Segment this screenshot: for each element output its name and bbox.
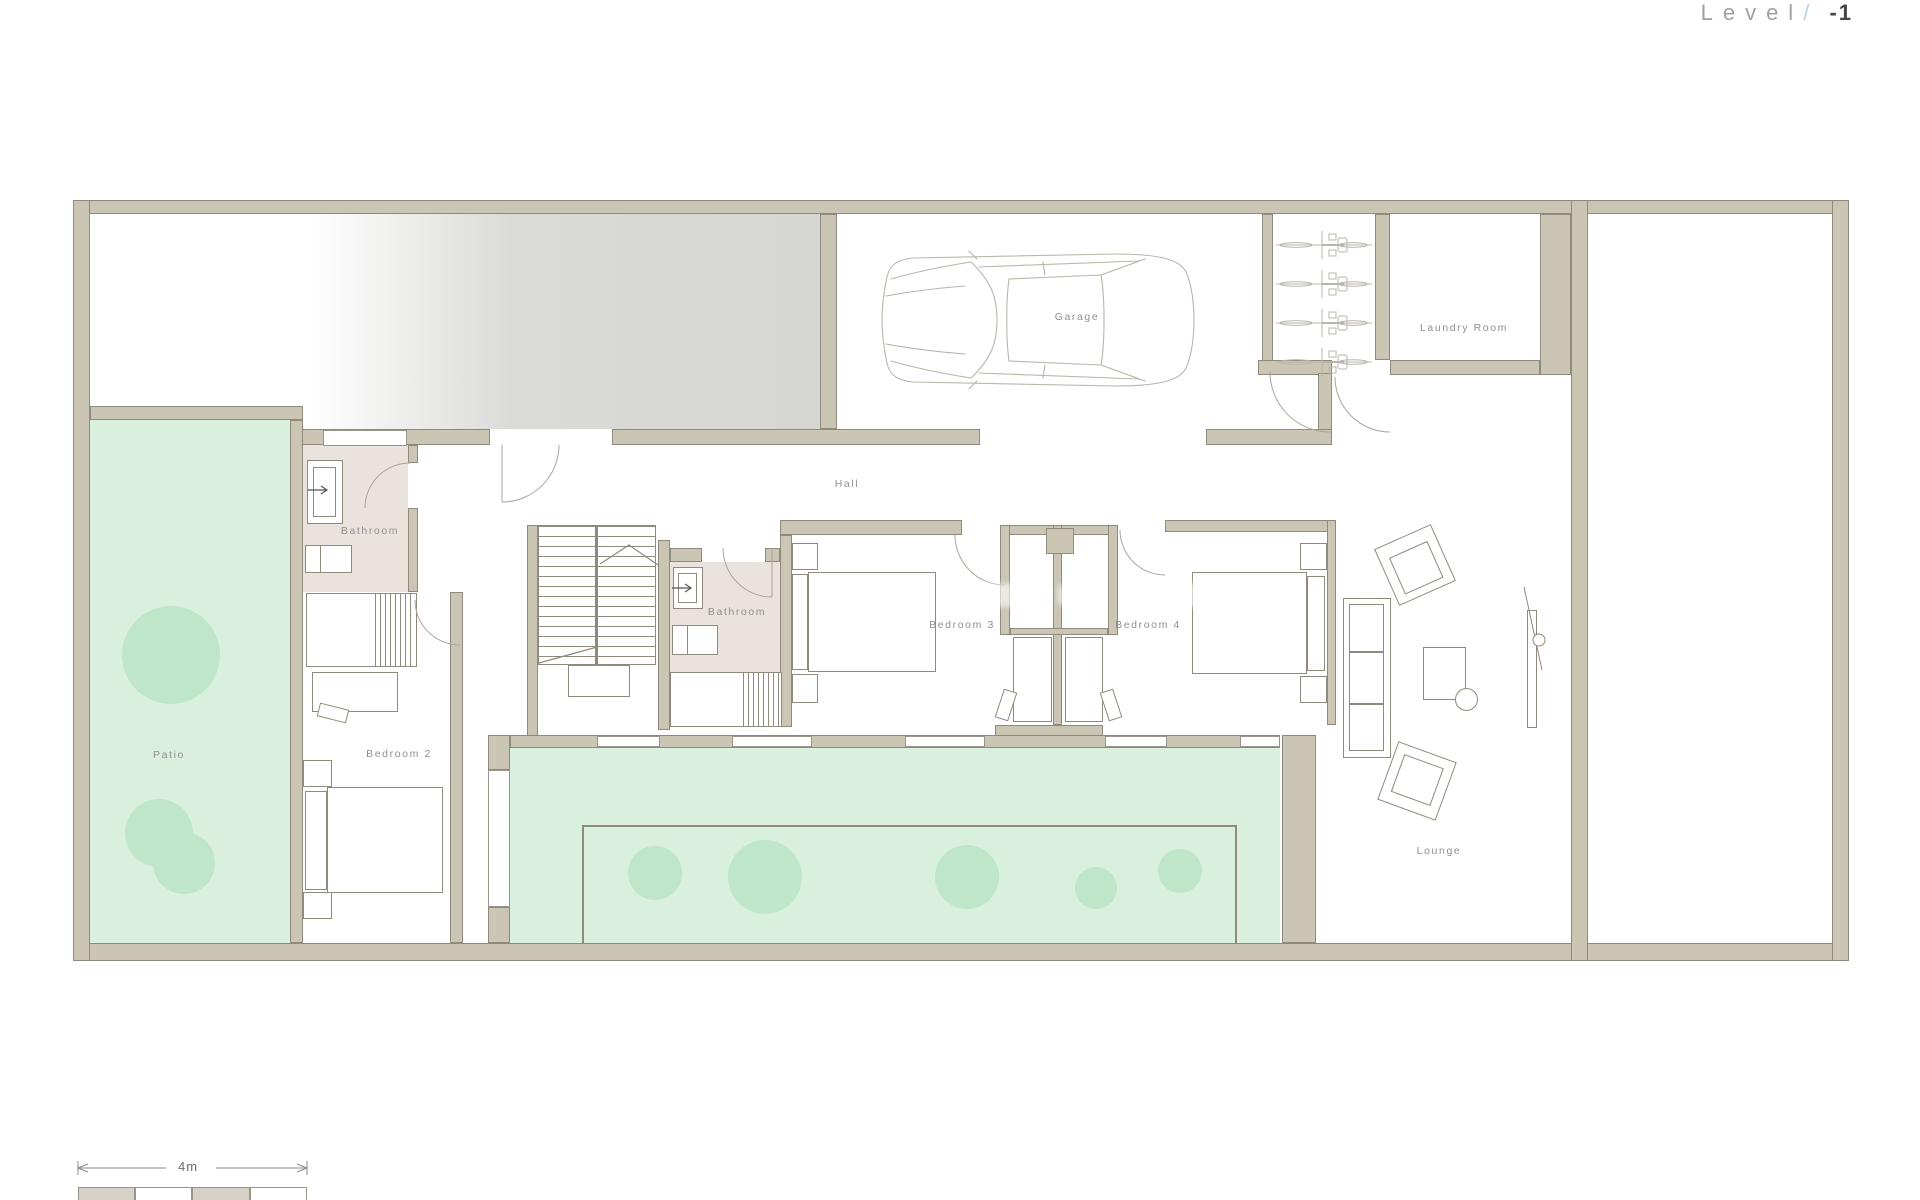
wall-outer-right bbox=[1832, 200, 1849, 961]
scale-bar-segment-3 bbox=[192, 1187, 250, 1200]
watermark bbox=[1128, 583, 1213, 607]
wall-outer-left bbox=[73, 200, 90, 961]
wall-bath1-right-bottom bbox=[408, 508, 418, 592]
laundry-room-label: Laundry Room bbox=[1420, 322, 1508, 334]
wall-closet-block-square bbox=[1046, 528, 1074, 554]
bathroom-1-label: Bathroom bbox=[341, 525, 399, 537]
watermark bbox=[952, 583, 1047, 607]
window-courtyard-left bbox=[488, 770, 510, 907]
sink-1 bbox=[305, 545, 352, 573]
desk-bedroom-3 bbox=[1013, 637, 1052, 722]
scale-bar-label: 4m bbox=[178, 1159, 198, 1174]
bedroom-4-label: Bedroom 4 bbox=[1115, 619, 1181, 631]
bicycle-icon-2 bbox=[1276, 270, 1372, 298]
staircase-landing bbox=[568, 665, 630, 697]
scale-bar-segment-2 bbox=[135, 1187, 192, 1200]
nightstand-bedroom-3-top bbox=[792, 543, 818, 570]
lounge-label: Lounge bbox=[1417, 845, 1462, 857]
courtyard-tree-2 bbox=[728, 840, 802, 914]
staircase bbox=[538, 525, 656, 665]
car-top-view-icon bbox=[882, 251, 1194, 389]
nightstand-bedroom-4-bottom bbox=[1300, 676, 1327, 703]
wardrobe-bedroom-2-hangers bbox=[375, 594, 415, 666]
niche-above-bathroom-1 bbox=[323, 430, 407, 446]
wall-closet-block-left bbox=[1000, 525, 1010, 635]
watermark bbox=[1058, 584, 1096, 606]
sofa-cushion-1 bbox=[1349, 604, 1384, 652]
patio-tree-small-2 bbox=[153, 832, 215, 894]
scale-bar-segment-4 bbox=[250, 1187, 307, 1200]
courtyard-tree-5 bbox=[1158, 849, 1202, 893]
wall-bedroom3-top bbox=[780, 520, 962, 535]
wall-laundry-bottom bbox=[1390, 360, 1540, 375]
bed-bedroom-4-headboard bbox=[1307, 576, 1325, 671]
door-arc-bedroom-4 bbox=[1120, 530, 1165, 575]
door-arc-laundry bbox=[1335, 377, 1390, 432]
wall-row1-b bbox=[612, 429, 980, 445]
level-label: Level bbox=[1701, 0, 1804, 25]
wall-row1-c bbox=[1206, 429, 1332, 445]
wall-laundry-right bbox=[1540, 214, 1571, 375]
bed-bedroom-3 bbox=[808, 572, 936, 672]
window-courtyard-3 bbox=[905, 736, 985, 747]
armchair-lounge-bottom-seat bbox=[1391, 754, 1444, 806]
level-value: -1 bbox=[1829, 0, 1853, 25]
courtyard-tree-1 bbox=[628, 846, 682, 900]
wall-stairs-left bbox=[527, 525, 538, 745]
wall-closet-cells-bottom bbox=[1010, 628, 1108, 635]
bed-bedroom-2 bbox=[327, 787, 443, 893]
wall-garage-right bbox=[1262, 214, 1273, 362]
nightstand-bedroom-3-bottom bbox=[792, 674, 818, 703]
bathroom-2-label: Bathroom bbox=[708, 606, 766, 618]
bedroom-3-label: Bedroom 3 bbox=[929, 619, 995, 631]
armchair-lounge-top-seat bbox=[1389, 541, 1444, 595]
floor-plan-canvas: Garage Laundry Room Hall Bathroom Bathro… bbox=[0, 0, 1920, 1200]
wall-patio-right bbox=[290, 420, 303, 943]
garage-label: Garage bbox=[1055, 311, 1100, 323]
wall-patio-top bbox=[90, 406, 303, 420]
wall-closet-block-mid bbox=[1053, 525, 1062, 725]
wall-courtyard-left-top bbox=[488, 735, 510, 770]
shower-2-door bbox=[678, 573, 697, 603]
sofa-lounge bbox=[1343, 598, 1391, 758]
armchair-lounge-top bbox=[1374, 524, 1456, 606]
courtyard-tree-3 bbox=[935, 845, 999, 909]
bicycle-icon-1 bbox=[1276, 231, 1372, 259]
hall-label: Hall bbox=[835, 478, 860, 490]
window-courtyard-1 bbox=[597, 736, 660, 747]
bedroom-2-label: Bedroom 2 bbox=[366, 748, 432, 760]
wall-bath2-top-right bbox=[765, 548, 780, 562]
side-table-round-lounge bbox=[1455, 688, 1478, 711]
wall-bedroom4-top bbox=[1165, 520, 1332, 532]
desk-bedroom-4 bbox=[1065, 637, 1103, 722]
sofa-cushion-3 bbox=[1349, 704, 1384, 751]
scale-bar-segment-1 bbox=[78, 1187, 135, 1200]
wall-garage-left bbox=[820, 214, 837, 429]
door-arc-bedroom-3 bbox=[955, 535, 1005, 585]
window-courtyard-5 bbox=[1240, 736, 1280, 747]
sink-2 bbox=[672, 625, 718, 655]
sofa-cushion-2 bbox=[1349, 652, 1384, 704]
wall-courtyard-right-column bbox=[1282, 735, 1316, 943]
window-courtyard-2 bbox=[732, 736, 812, 747]
wall-bedroom4-right bbox=[1327, 520, 1336, 725]
bed-bedroom-3-headboard bbox=[792, 574, 808, 670]
bed-bedroom-2-headboard bbox=[305, 791, 327, 890]
wall-laundry-left bbox=[1375, 214, 1390, 360]
staircase-divider bbox=[595, 526, 598, 666]
courtyard-inner-deck bbox=[582, 825, 1237, 943]
nightstand-bedroom-4-top bbox=[1300, 543, 1327, 570]
wall-stairs-right bbox=[658, 540, 670, 730]
nightstand-bedroom-2-bottom bbox=[303, 892, 332, 919]
courtyard-tree-4 bbox=[1075, 867, 1117, 909]
driveway-floor bbox=[90, 214, 820, 429]
chair-desk-bedroom-4 bbox=[1100, 689, 1123, 722]
wall-bath1-right-top bbox=[408, 445, 418, 463]
wardrobe-bathroom-2-hangers bbox=[743, 673, 780, 726]
tv-panel-lounge bbox=[1527, 610, 1537, 728]
window-courtyard-4 bbox=[1105, 736, 1167, 747]
wall-right-section-divider bbox=[1571, 200, 1588, 961]
patio-tree-large bbox=[122, 606, 220, 704]
sink-1-divider bbox=[320, 546, 321, 572]
wall-courtyard-left-bottom bbox=[488, 907, 510, 943]
page-title: Level/ -1 bbox=[1701, 0, 1853, 26]
wall-bath2-top-left bbox=[670, 548, 702, 562]
sink-2-divider bbox=[687, 626, 688, 654]
shower-1-door bbox=[313, 467, 336, 517]
patio-label: Patio bbox=[153, 749, 185, 761]
nightstand-bedroom-2-top bbox=[303, 760, 332, 787]
wall-bedroom2-right bbox=[450, 592, 463, 943]
level-separator: / bbox=[1803, 0, 1813, 25]
bicycle-icon-3 bbox=[1276, 309, 1372, 337]
door-arc-entry bbox=[502, 445, 559, 502]
